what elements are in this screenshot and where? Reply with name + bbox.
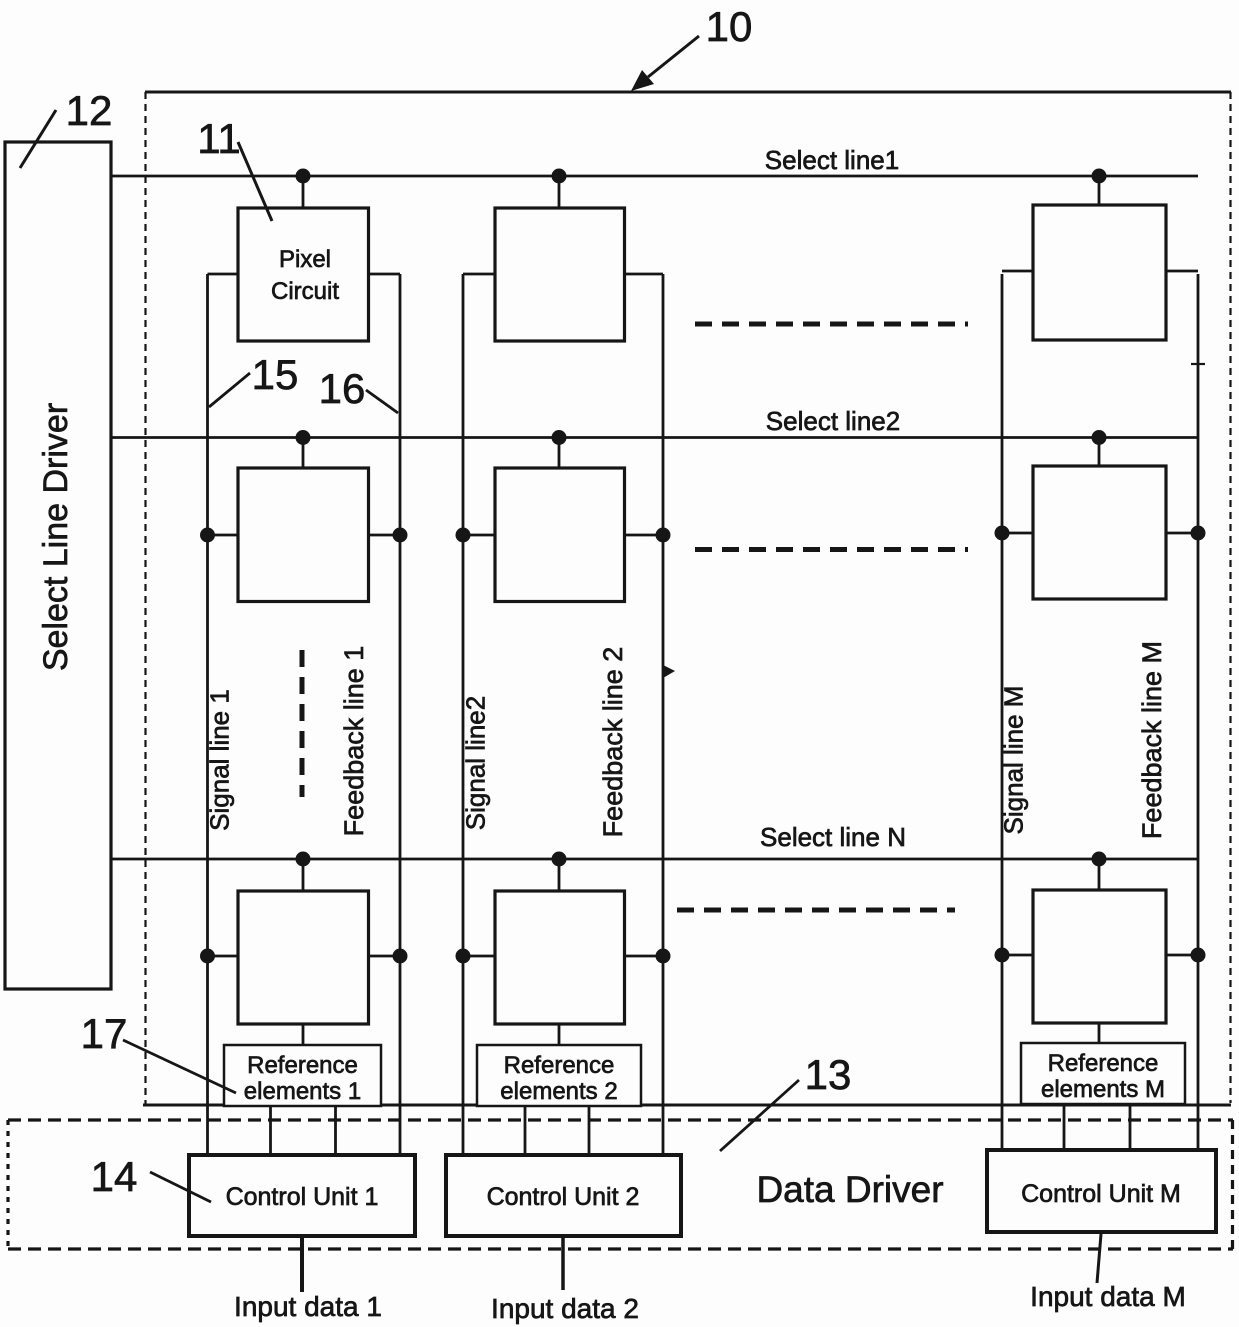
svg-text:Control Unit M: Control Unit M (1021, 1180, 1181, 1208)
svg-text:Feedback line 2: Feedback line 2 (598, 647, 628, 838)
svg-text:elements M: elements M (1041, 1076, 1165, 1103)
svg-text:Control Unit 2: Control Unit 2 (487, 1183, 640, 1211)
svg-text:15: 15 (252, 351, 299, 398)
svg-text:Control Unit 1: Control Unit 1 (226, 1183, 379, 1211)
svg-text:17: 17 (81, 1010, 128, 1057)
svg-text:Select line1: Select line1 (765, 145, 899, 175)
svg-text:Input data 1: Input data 1 (234, 1291, 382, 1322)
svg-text:Input data M: Input data M (1030, 1281, 1186, 1312)
svg-text:Select line2: Select line2 (766, 406, 900, 436)
svg-text:12: 12 (66, 87, 113, 134)
svg-text:elements 1: elements 1 (244, 1078, 361, 1105)
svg-text:Reference: Reference (1048, 1050, 1159, 1077)
svg-text:Input data 2: Input data 2 (491, 1293, 639, 1324)
svg-text:10: 10 (706, 3, 753, 50)
svg-text:Pixel: Pixel (279, 246, 331, 273)
svg-text:Select Line Driver: Select Line Driver (37, 403, 75, 671)
svg-text:Select line N: Select line N (760, 822, 906, 852)
svg-text:14: 14 (91, 1153, 138, 1200)
svg-text:Reference: Reference (247, 1052, 358, 1079)
svg-text:elements 2: elements 2 (500, 1078, 617, 1105)
svg-text:Signal line M: Signal line M (999, 686, 1029, 835)
svg-text:13: 13 (805, 1051, 852, 1098)
svg-text:Circuit: Circuit (271, 278, 339, 305)
svg-text:Reference: Reference (504, 1052, 615, 1079)
svg-text:Data Driver: Data Driver (756, 1169, 943, 1210)
svg-text:Feedback line 1: Feedback line 1 (339, 646, 369, 837)
svg-text:Signal line 1: Signal line 1 (205, 689, 235, 831)
svg-text:16: 16 (319, 365, 366, 412)
svg-text:Signal line2: Signal line2 (461, 696, 491, 830)
svg-text:Feedback line M: Feedback line M (1137, 641, 1167, 839)
svg-text:11: 11 (197, 115, 241, 162)
